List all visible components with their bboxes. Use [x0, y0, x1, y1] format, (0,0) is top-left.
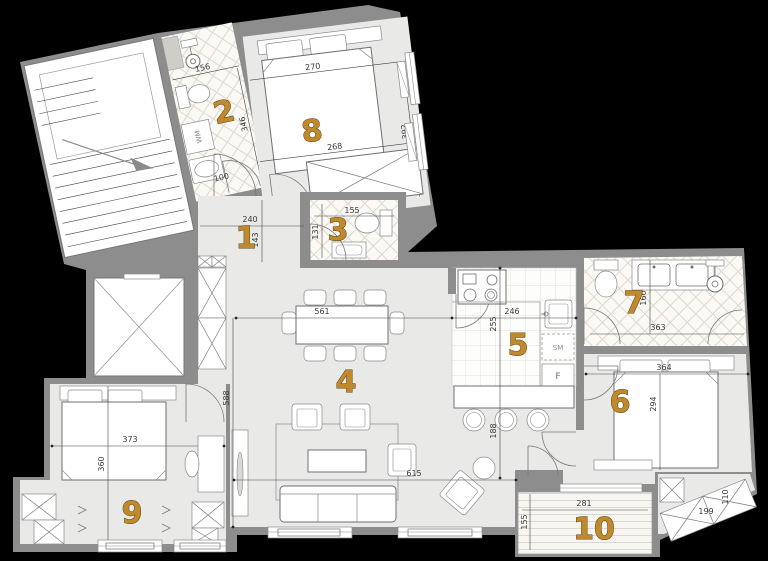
- room-label-1: 1: [236, 221, 257, 256]
- dim-room3-depth: 131: [311, 224, 320, 239]
- room-label-6: 6: [610, 385, 631, 420]
- dim-room6-depth: 294: [649, 396, 658, 411]
- room-label-7: 7: [624, 286, 645, 321]
- fridge-label: F: [555, 372, 560, 382]
- room-7-bathroom: 363 160: [584, 256, 747, 346]
- coffee-table: [308, 450, 366, 472]
- window-room9-right: [174, 540, 226, 552]
- closet-small-wardrobe: [660, 478, 684, 502]
- dim-room5-width: 246: [504, 307, 519, 316]
- dining-chair: [364, 346, 386, 361]
- dining-chair: [334, 290, 356, 305]
- dining-chair: [390, 312, 404, 334]
- room-3-wc: 155 131: [300, 192, 406, 268]
- sideboard-room6: [594, 460, 652, 470]
- armchair: [292, 404, 322, 430]
- dining-table: [296, 306, 388, 344]
- desk-chair: [185, 451, 199, 477]
- dim-closet-depth: 110: [721, 489, 730, 504]
- dim-room8-wardrobe-span: 268: [327, 141, 343, 152]
- dim-room5-depth: 255: [489, 316, 498, 331]
- dim-room8-bed-span: 270: [305, 61, 321, 72]
- dining-chair: [334, 346, 356, 361]
- corridor-wardrobes: [198, 256, 226, 369]
- dim-room4-window-span: 615: [406, 469, 421, 478]
- dim-room4-table-span: 561: [314, 307, 329, 316]
- toilet-icon-room7: [594, 260, 618, 297]
- window-room9-left: [98, 540, 162, 552]
- dim-room9-depth: 360: [97, 456, 106, 471]
- dining-chair: [304, 346, 326, 361]
- floor-plan-svg: 156 346 WM 270 268 392: [0, 0, 768, 561]
- armchair: [340, 404, 370, 430]
- window-room4-right: [398, 527, 482, 538]
- dim-balcony-depth: 155: [520, 514, 529, 529]
- dim-room4-depth: 588: [222, 390, 231, 405]
- dim-closet-width: 199: [698, 507, 713, 516]
- dim-room7-width: 363: [650, 323, 665, 332]
- dim-room4-passage: 188: [489, 423, 498, 438]
- room-label-8: 8: [300, 113, 325, 150]
- dim-room6-width: 364: [656, 363, 671, 372]
- washing-machine: WM: [181, 119, 215, 154]
- kitchen-sink-icon: [541, 300, 572, 328]
- tv-icon: [237, 452, 243, 496]
- side-table: [473, 457, 495, 479]
- tv-unit: [232, 430, 248, 516]
- dim-room9-width: 373: [122, 435, 137, 444]
- stove-icon: [458, 270, 506, 304]
- hall-wall-stub: [515, 470, 563, 484]
- elevator-door: [124, 274, 160, 279]
- floor-plan-canvas: 156 346 WM 270 268 392: [0, 0, 768, 561]
- fridge: F: [542, 364, 574, 388]
- dim-balcony-width: 281: [576, 499, 591, 508]
- dishwasher-label: SM: [553, 344, 563, 352]
- room-label-10: 10: [573, 512, 615, 547]
- room-label-4: 4: [336, 365, 357, 400]
- dining-chair: [364, 290, 386, 305]
- bed-room9: [60, 386, 176, 480]
- window-room4-left: [268, 527, 352, 538]
- dishwasher: SM: [542, 334, 574, 360]
- dining-chair: [304, 290, 326, 305]
- room-label-3: 3: [328, 213, 349, 248]
- room-label-9: 9: [122, 496, 143, 531]
- sofa: [280, 486, 396, 522]
- room-label-5: 5: [508, 328, 529, 363]
- elevator: [94, 274, 184, 376]
- kitchen-wall-stub: [448, 268, 456, 294]
- dining-chair: [282, 312, 296, 334]
